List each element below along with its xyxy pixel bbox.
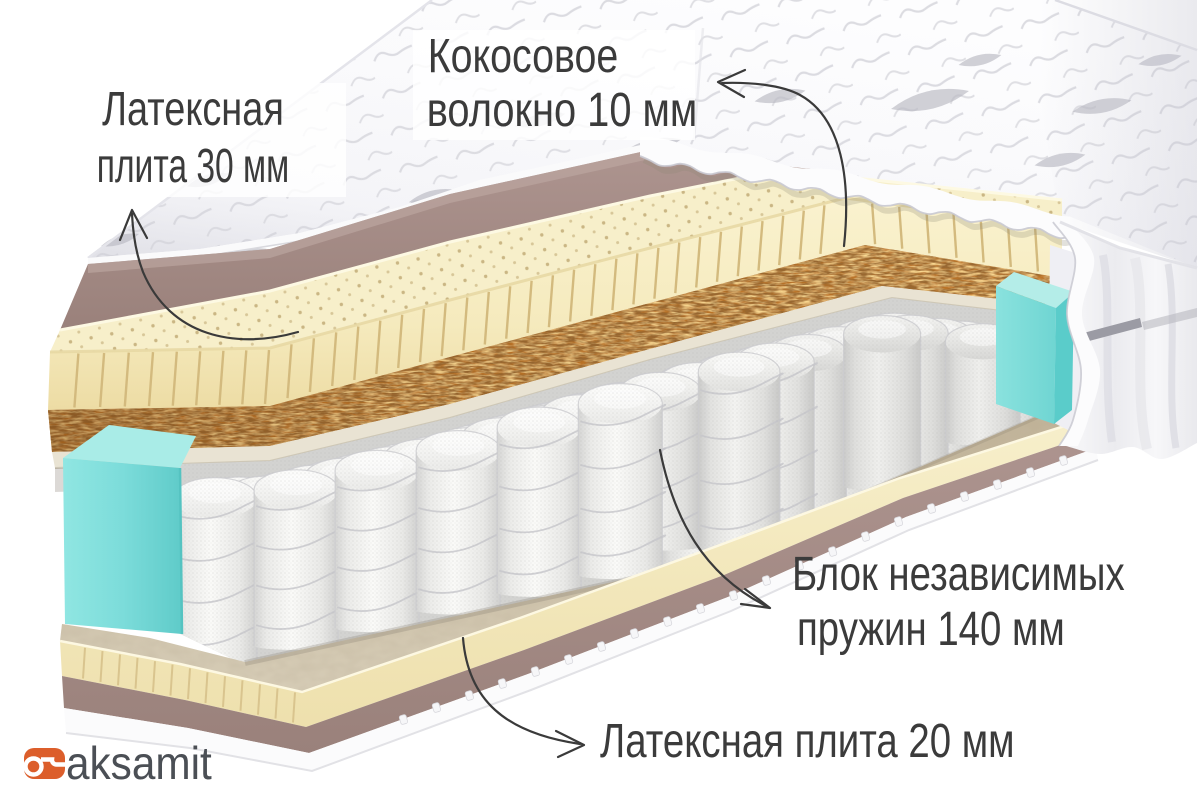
svg-text:Латексная плита 20 мм: Латексная плита 20 мм [600,715,1015,768]
svg-text:Блок независимых: Блок независимых [792,548,1125,601]
svg-text:aksamit: aksamit [66,738,212,789]
svg-text:волокно 10 мм: волокно 10 мм [427,84,698,137]
svg-text:плита 30 мм: плита 30 мм [97,138,289,192]
svg-text:Кокосовое: Кокосовое [428,29,619,83]
svg-text:пружин 140 мм: пружин 140 мм [797,603,1065,656]
svg-text:Латексная: Латексная [102,83,284,136]
